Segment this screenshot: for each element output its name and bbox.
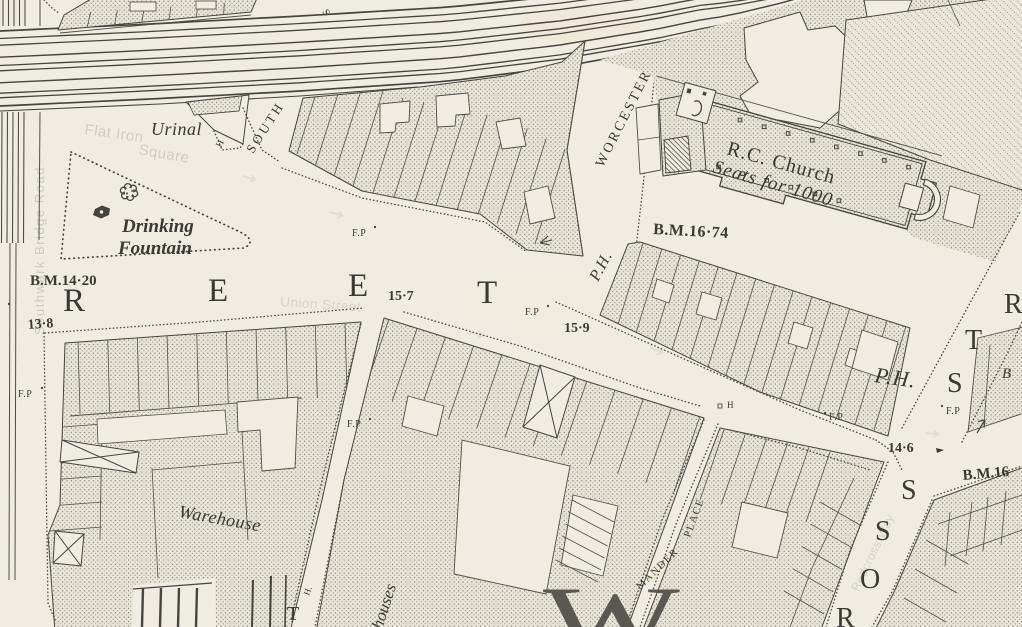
- svg-text:E: E: [208, 273, 228, 309]
- svg-text:T: T: [477, 275, 497, 311]
- svg-text:H: H: [727, 400, 734, 410]
- svg-text:Fountain: Fountain: [117, 238, 192, 259]
- svg-text:15·7: 15·7: [388, 289, 414, 304]
- svg-text:F.P: F.P: [347, 419, 361, 430]
- svg-text:E: E: [348, 268, 368, 304]
- svg-text:F.P: F.P: [525, 307, 539, 318]
- svg-text:W: W: [543, 566, 680, 627]
- svg-text:R: R: [63, 283, 85, 319]
- svg-text:F.P: F.P: [352, 228, 366, 239]
- svg-text:R: R: [1004, 289, 1022, 320]
- svg-text:F.P: F.P: [829, 412, 843, 423]
- svg-text:S: S: [901, 475, 917, 506]
- svg-text:T: T: [287, 603, 299, 625]
- svg-text:T: T: [965, 325, 982, 356]
- svg-text:F.P: F.P: [18, 389, 32, 400]
- svg-text:O: O: [860, 564, 880, 595]
- svg-text:Urinal: Urinal: [151, 119, 202, 139]
- svg-text:B: B: [1002, 366, 1011, 382]
- svg-text:S: S: [875, 516, 891, 547]
- svg-text:15·9: 15·9: [564, 321, 590, 336]
- svg-text:F.P: F.P: [946, 406, 960, 417]
- svg-text:Drinking: Drinking: [121, 216, 194, 237]
- svg-text:R: R: [836, 603, 855, 627]
- svg-text:14·6: 14·6: [888, 441, 914, 456]
- svg-text:S: S: [947, 368, 963, 399]
- svg-text:13·8: 13·8: [27, 316, 54, 333]
